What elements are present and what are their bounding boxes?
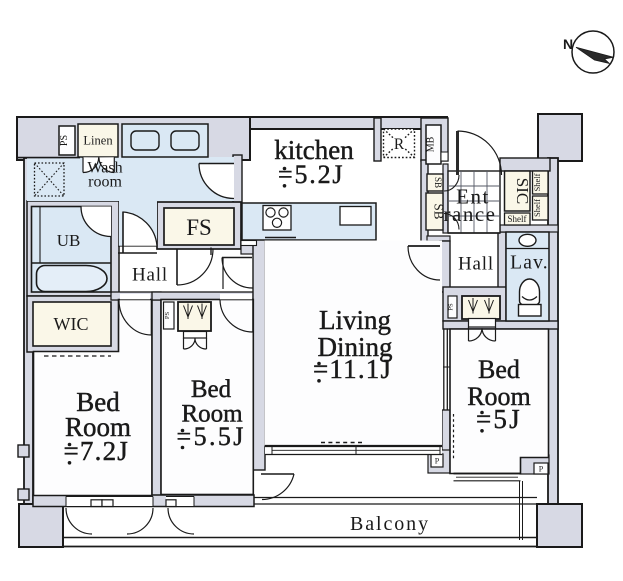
svg-text:R: R (394, 136, 405, 153)
svg-text:Hall: Hall (132, 265, 168, 286)
svg-text:P: P (435, 457, 440, 466)
svg-text:rance: rance (444, 202, 497, 226)
svg-text:PS: PS (448, 303, 455, 311)
svg-text:SIC: SIC (513, 178, 532, 204)
svg-text:MB: MB (426, 136, 437, 152)
svg-text:Living: Living (319, 305, 391, 335)
svg-text:Lav.: Lav. (510, 253, 549, 274)
svg-text:=5.2J: =5.2J (278, 160, 344, 189)
svg-text:Shelf: Shelf (508, 214, 527, 224)
svg-text:PS: PS (59, 135, 70, 146)
svg-text:PS: PS (164, 312, 171, 320)
svg-text:FS: FS (186, 215, 212, 240)
svg-text:SB: SB (432, 204, 447, 220)
svg-text:UB: UB (57, 231, 81, 250)
svg-text:Linen: Linen (83, 134, 113, 148)
svg-text:room: room (88, 174, 122, 191)
svg-text:Shelf: Shelf (532, 199, 542, 217)
svg-text:SB: SB (433, 177, 443, 188)
svg-text:Hall: Hall (458, 254, 494, 275)
svg-text:=7.2J: =7.2J (64, 436, 129, 466)
svg-text:=5.5J: =5.5J (177, 422, 246, 451)
svg-text:Bed: Bed (191, 376, 232, 403)
svg-text:Balcony: Balcony (350, 513, 430, 535)
svg-text:Bed: Bed (478, 355, 520, 384)
svg-text:Shelf: Shelf (532, 173, 542, 191)
svg-text:WIC: WIC (54, 314, 89, 334)
svg-text:=11.1J: =11.1J (313, 354, 392, 384)
svg-text:N: N (563, 36, 573, 52)
svg-text:P: P (539, 465, 544, 474)
